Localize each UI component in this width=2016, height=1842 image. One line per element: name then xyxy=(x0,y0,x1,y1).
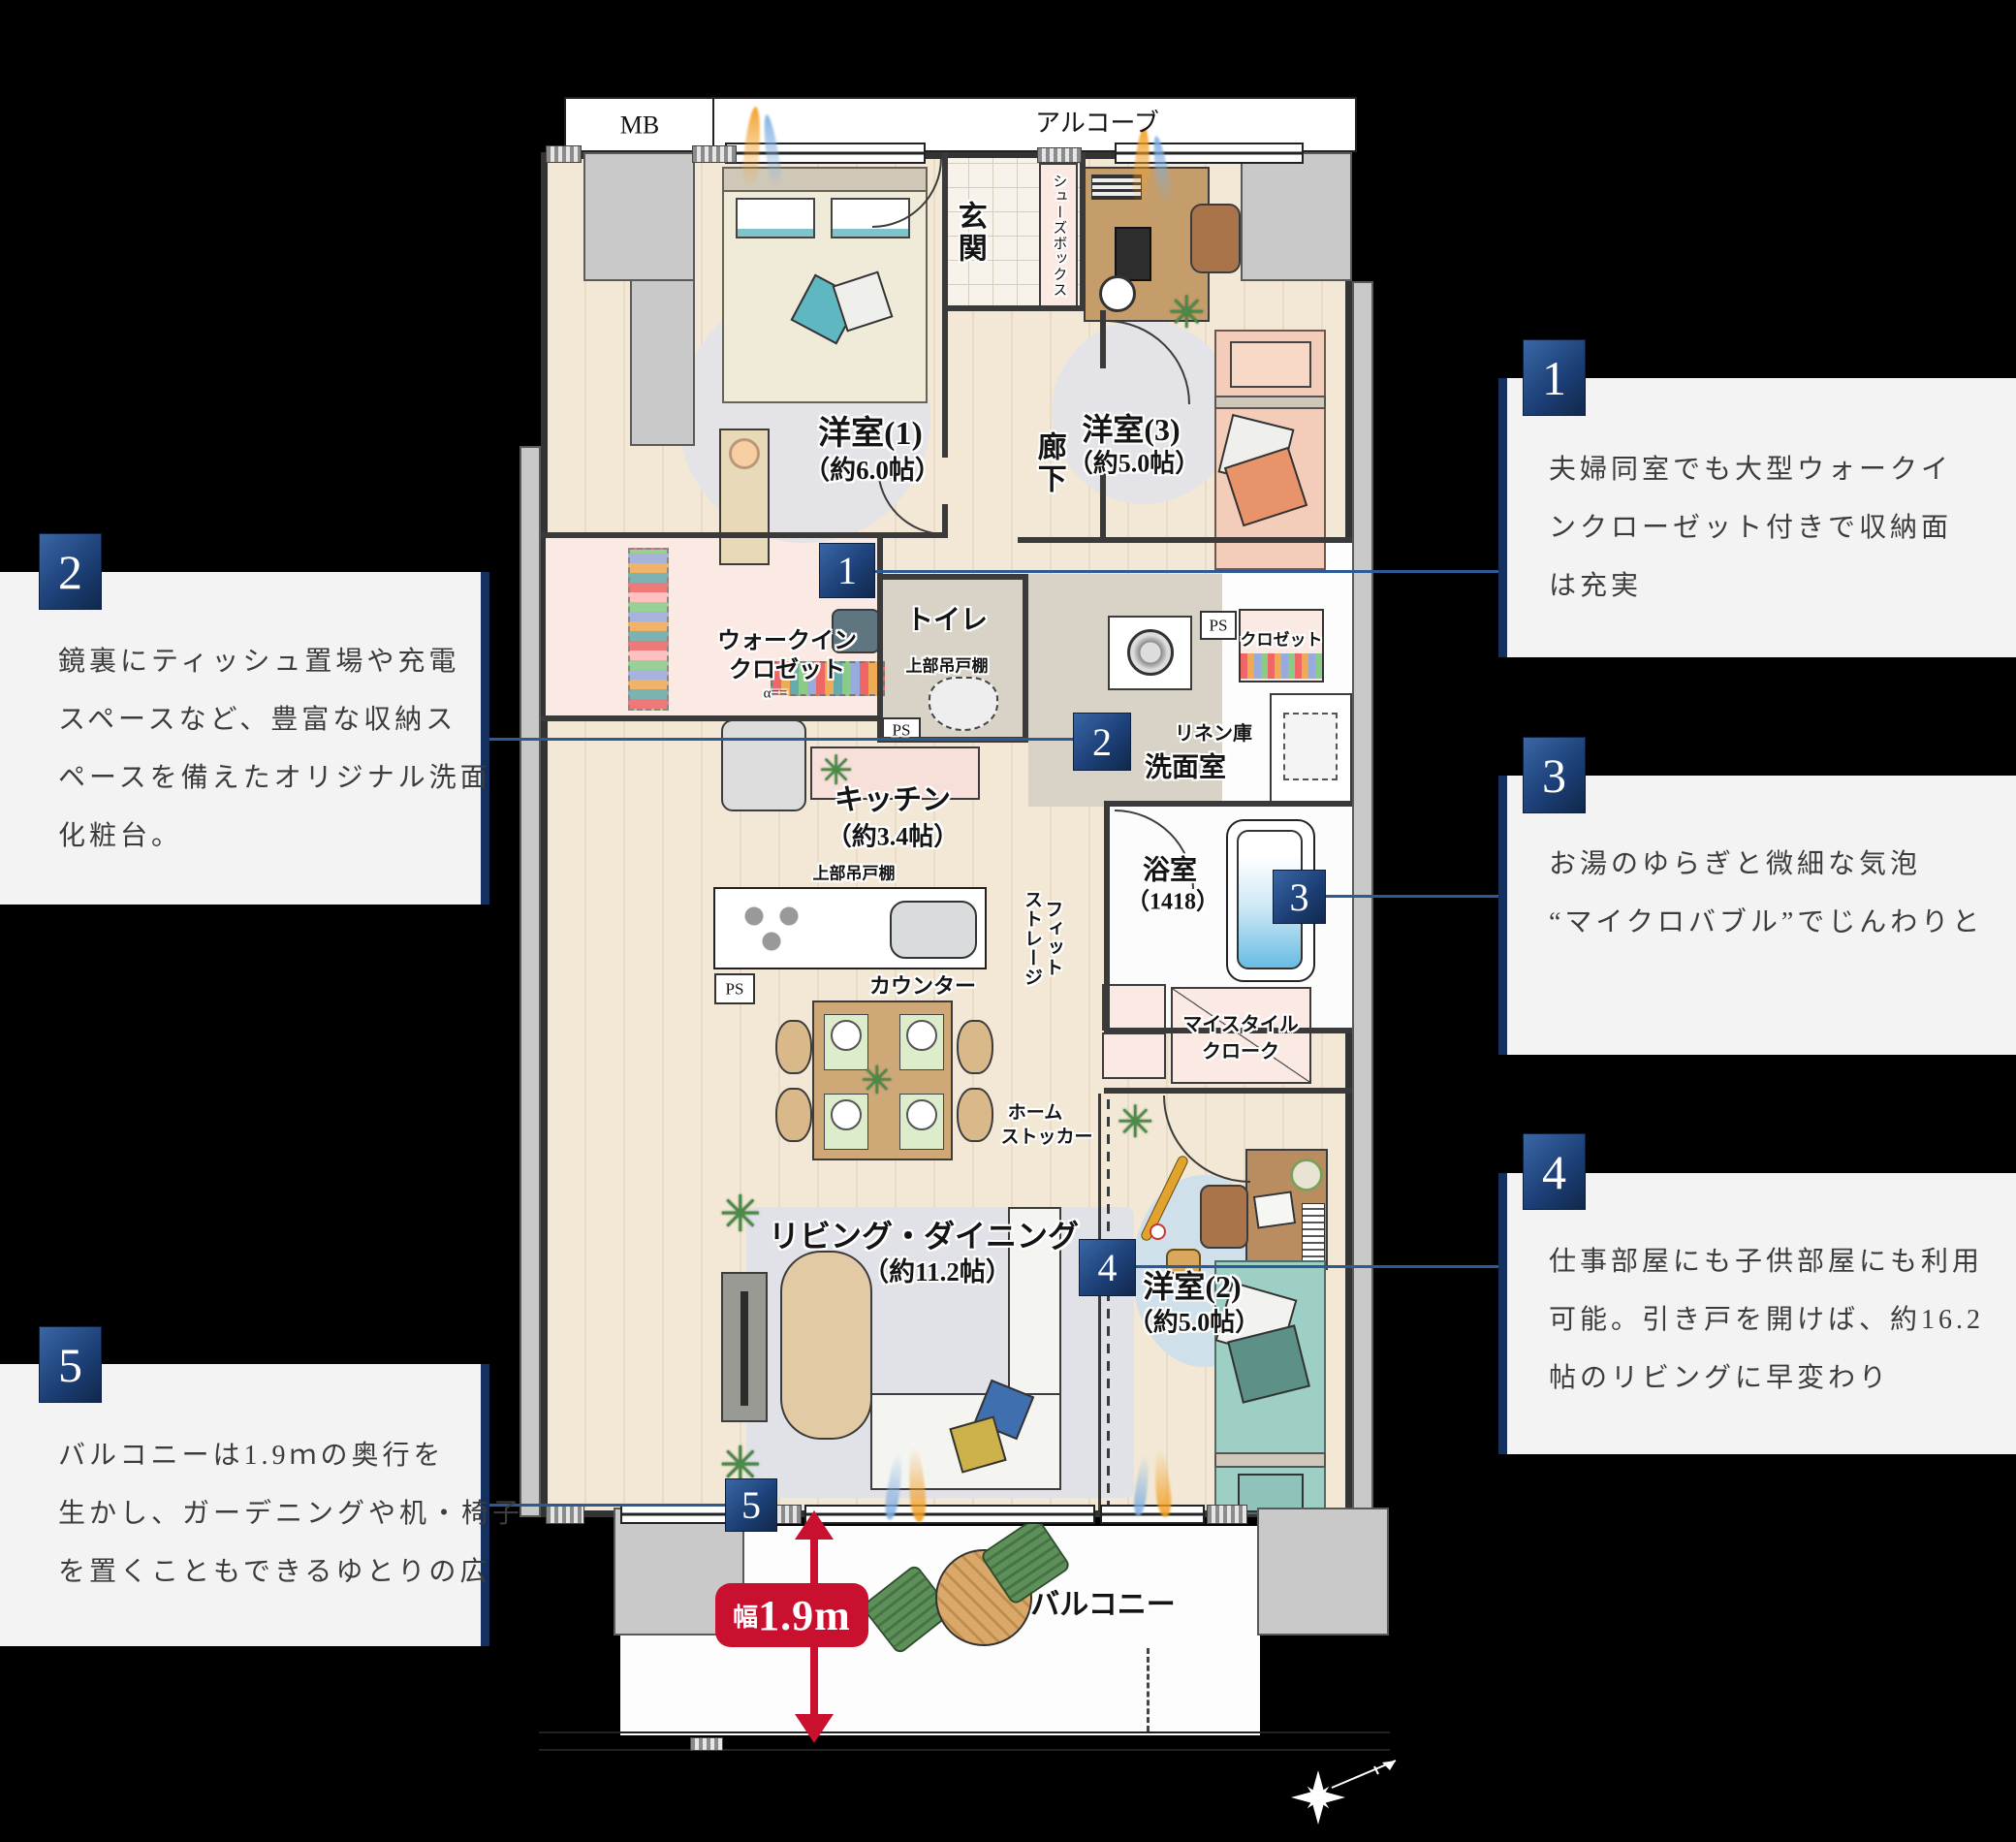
bedroom1-size: （約6.0帖） xyxy=(803,456,941,485)
callout-3-line: “マイクロバブル”でじんわりと xyxy=(1549,894,1983,952)
callout-2-line: スペースなど、豊富な収納ス xyxy=(58,691,491,749)
bed-divider xyxy=(1214,396,1326,409)
bedroom1-name: 洋室(1) xyxy=(818,416,923,453)
wic-rack-left xyxy=(628,548,669,711)
stove-icon xyxy=(735,899,810,961)
callout-1-badge: 1 xyxy=(1523,339,1586,416)
plan-badge-1: 1 xyxy=(819,543,875,598)
fit-storage-label: フィット ストレージ xyxy=(1022,890,1063,987)
vent-hatch xyxy=(1207,1505,1247,1524)
callout-5-line: を置くこともできるゆとりの広 xyxy=(58,1543,523,1602)
fit-storage-box-2 xyxy=(1102,1032,1166,1079)
callout-2-line: 化粧台。 xyxy=(58,808,491,866)
wall xyxy=(541,715,883,721)
connector-1 xyxy=(875,570,1498,573)
connector-4 xyxy=(1136,1265,1498,1268)
vent-hatch xyxy=(692,145,737,163)
wall xyxy=(877,574,1023,580)
wall xyxy=(1104,801,1110,1033)
plant-icon: ✳ xyxy=(1117,1100,1154,1145)
vent-hatch xyxy=(546,1505,584,1524)
home-stocker-label-2: ストッカー xyxy=(1000,1127,1092,1147)
wall xyxy=(877,538,883,737)
pillar-top-right xyxy=(1241,152,1352,281)
wall xyxy=(1023,574,1028,743)
callout-5-badge: 5 xyxy=(39,1326,102,1403)
vent-hatch xyxy=(690,1737,723,1751)
bedroom2-window xyxy=(1100,1505,1205,1524)
basin-icon xyxy=(1283,713,1338,780)
balcony-parapet-line xyxy=(539,1731,1390,1733)
balcony-divider xyxy=(1147,1648,1150,1731)
balcony-label: バルコニー xyxy=(1030,1589,1175,1622)
plan-badge-2: 2 xyxy=(1073,713,1131,771)
plate-icon xyxy=(831,1099,862,1130)
single-bed-b3 xyxy=(1214,330,1326,570)
plant-icon: ✳ xyxy=(719,1191,762,1241)
washroom-label: 洗面室 xyxy=(1145,752,1226,782)
mb-label: MB xyxy=(620,111,659,139)
plate-icon xyxy=(831,1020,862,1051)
plant-icon: ✳ xyxy=(1168,291,1206,335)
kids-desk xyxy=(1245,1149,1328,1270)
callout-4-line: 可能。引き戸を開けば、約16.2 xyxy=(1549,1291,1984,1350)
closet-label: クロゼット xyxy=(1241,630,1323,649)
wall xyxy=(1018,537,1352,543)
mirror-icon xyxy=(729,438,760,469)
washer-drum-icon xyxy=(1127,629,1174,676)
pillar-top-left xyxy=(583,152,695,281)
plan-badge-3: 3 xyxy=(1273,870,1326,924)
dining-chair xyxy=(775,1020,812,1074)
bed-pillow xyxy=(736,198,815,238)
desk-chair xyxy=(1190,204,1241,273)
linen-label: リネン庫 xyxy=(1175,723,1252,745)
callout-4-text: 仕事部屋にも子供部屋にも利用 可能。引き戸を開けば、約16.2 帖のリビングに早… xyxy=(1549,1233,1984,1408)
counter-label: カウンター xyxy=(869,975,976,1000)
plan-badge-5: 5 xyxy=(725,1478,777,1532)
wall xyxy=(541,532,948,538)
dimension-arrow-head-up xyxy=(795,1510,834,1540)
plate-icon xyxy=(906,1020,937,1051)
callout-5-text: バルコニーは1.9ｍの奥行を 生かし、ガーデニングや机・椅子 を置くこともできる… xyxy=(58,1427,523,1602)
kitchen-name: キッチン xyxy=(835,784,951,817)
washing-machine xyxy=(1108,616,1192,690)
plate-icon xyxy=(906,1099,937,1130)
callout-1-line: ンクローゼット付きで収納面 xyxy=(1549,499,1952,557)
callout-3-text: お湯のゆらぎと微細な気泡 “マイクロバブル”でじんわりと xyxy=(1549,836,1983,952)
foot-cushion xyxy=(1238,1474,1304,1512)
wall xyxy=(1104,1088,1352,1094)
wall xyxy=(942,504,948,538)
laptop-icon xyxy=(1115,227,1151,281)
refrigerator xyxy=(721,719,806,811)
kitchen-island xyxy=(713,887,987,969)
callout-2-badge: 2 xyxy=(39,533,102,610)
bath-name: 浴室 xyxy=(1143,855,1197,885)
callout-4-badge: 4 xyxy=(1523,1133,1586,1210)
callout-4-line: 仕事部屋にも子供部屋にも利用 xyxy=(1549,1233,1984,1291)
ps-label-washroom: PS xyxy=(1210,616,1228,634)
fit-storage-line2: ストレージ xyxy=(1022,890,1042,987)
living-size: （約11.2帖） xyxy=(863,1257,1012,1286)
drawer-icon xyxy=(1302,1203,1325,1263)
mystyle-label-1: マイスタイル xyxy=(1182,1014,1298,1035)
ps-label-toilet: PS xyxy=(893,720,911,739)
wic-label-1: ウォークイン xyxy=(717,629,857,655)
wall xyxy=(942,305,1086,311)
home-stocker-label-1: ホーム xyxy=(1008,1102,1062,1123)
shoebox-label: シューズボックス xyxy=(1051,174,1067,298)
tv-board xyxy=(721,1272,768,1422)
baseball-icon xyxy=(1150,1223,1166,1240)
hanger-mark: α== xyxy=(764,686,788,703)
paper-icon xyxy=(1253,1191,1296,1228)
side-wall-left xyxy=(520,446,541,1517)
coffee-table xyxy=(780,1251,872,1440)
place-setting xyxy=(899,1094,944,1150)
vent-hatch xyxy=(546,145,582,163)
dimension-prefix: 幅 xyxy=(733,1598,758,1634)
washbasin xyxy=(1270,693,1352,805)
wall xyxy=(1100,310,1106,368)
wic-label-2: クロゼット xyxy=(729,658,845,684)
fit-storage-box-1 xyxy=(1102,984,1166,1031)
dining-chair xyxy=(957,1088,993,1142)
wall xyxy=(1080,152,1086,311)
dresser xyxy=(719,429,770,565)
balcony-parapet-line xyxy=(539,1749,1390,1751)
clock-icon xyxy=(1099,275,1136,312)
alcove-label: アルコーブ xyxy=(1035,109,1159,137)
callout-3-line: お湯のゆらぎと微細な気泡 xyxy=(1549,836,1983,894)
tv-icon xyxy=(740,1291,748,1406)
bath-size: （1418） xyxy=(1126,890,1219,916)
sliding-door-track xyxy=(1107,1094,1110,1510)
kids-chair xyxy=(1200,1185,1248,1249)
callout-1-line: は充実 xyxy=(1549,557,1952,616)
wall xyxy=(1104,801,1352,807)
callout-2-line: 鏡裏にティッシュ置場や充電 xyxy=(58,633,491,691)
corridor-label: 廊下 xyxy=(1032,431,1065,495)
wall-stem-left xyxy=(630,279,695,446)
dimension-label: 幅1.9m xyxy=(715,1583,868,1647)
living-name: リビング・ダイニング xyxy=(769,1220,1079,1254)
dining-chair xyxy=(775,1088,812,1142)
callout-2-line: ペースを備えたオリジナル洗面 xyxy=(58,749,491,808)
toilet-fixture xyxy=(929,677,998,731)
sliding-door-track xyxy=(1098,1094,1101,1510)
kitchen-size: （約3.4帖） xyxy=(827,822,960,850)
sink-icon xyxy=(890,901,977,959)
callout-5-line: 生かし、ガーデニングや机・椅子 xyxy=(58,1485,523,1543)
side-wall-right xyxy=(1352,281,1373,1517)
toilet-upper-cabinet: 上部吊戸棚 xyxy=(906,656,989,675)
pillar-bottom-right xyxy=(1257,1508,1389,1636)
dimension-arrow-head-down xyxy=(795,1714,834,1743)
plan-badge-4: 4 xyxy=(1079,1239,1136,1296)
genkan-label: 玄関 xyxy=(953,201,986,265)
callout-2-text: 鏡裏にティッシュ置場や充電 スペースなど、豊富な収納ス ペースを備えたオリジナル… xyxy=(58,633,491,866)
callout-3-badge: 3 xyxy=(1523,737,1586,813)
bedroom2-name: 洋室(2) xyxy=(1143,1270,1241,1305)
ps-label-kitchen: PS xyxy=(726,979,744,998)
toilet-label: トイレ xyxy=(906,605,988,635)
connector-5 xyxy=(489,1504,751,1507)
bedroom3-name: 洋室(3) xyxy=(1082,413,1180,448)
kitchen-upper-cabinet: 上部吊戸棚 xyxy=(813,864,896,882)
callout-1-text: 夫婦同室でも大型ウォークイ ンクローゼット付きで収納面 は充実 xyxy=(1549,441,1952,616)
globe-icon xyxy=(1290,1159,1323,1191)
place-setting xyxy=(899,1014,944,1070)
fit-storage-line1: フィット xyxy=(1042,900,1062,977)
connector-3 xyxy=(1326,895,1498,898)
callout-5-line: バルコニーは1.9ｍの奥行を xyxy=(58,1427,523,1485)
callout-1-line: 夫婦同室でも大型ウォークイ xyxy=(1549,441,1952,499)
bed-foot-board xyxy=(1214,1452,1326,1468)
vent-hatch xyxy=(1037,147,1082,163)
connector-2 xyxy=(489,738,1090,741)
floorplan-page: MB アルコーブ xyxy=(0,0,2016,1842)
mystyle-label-2: クローク xyxy=(1202,1041,1279,1063)
living-window-2 xyxy=(804,1505,1095,1524)
bedroom2-size: （約5.0帖） xyxy=(1128,1308,1261,1336)
compass-icon xyxy=(1281,1753,1407,1838)
plant-icon: ✳ xyxy=(861,1062,894,1100)
bed-pillow xyxy=(1230,341,1311,388)
dining-chair xyxy=(957,1020,993,1074)
dimension-value: 1.9m xyxy=(758,1591,851,1640)
bedroom3-size: （約5.0帖） xyxy=(1068,449,1201,477)
callout-4-line: 帖のリビングに早変わり xyxy=(1549,1350,1984,1408)
